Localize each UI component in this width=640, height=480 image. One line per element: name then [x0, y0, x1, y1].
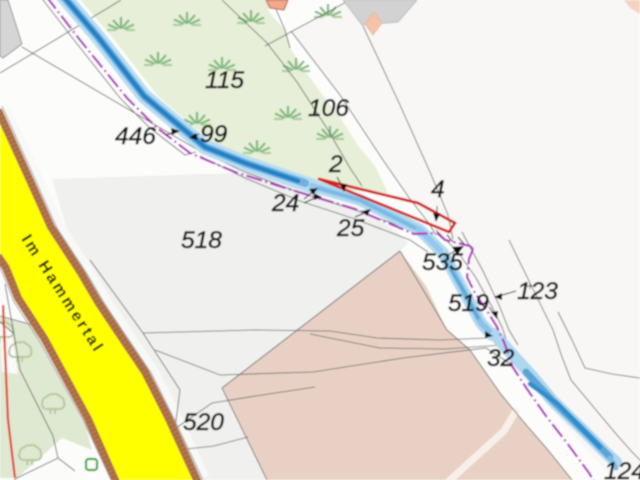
svg-text:99: 99 [200, 121, 228, 148]
svg-text:520: 520 [183, 409, 224, 436]
svg-text:124: 124 [604, 458, 640, 480]
svg-text:106: 106 [308, 95, 349, 122]
svg-text:25: 25 [336, 215, 365, 242]
svg-text:123: 123 [517, 278, 558, 305]
svg-text:32: 32 [487, 345, 515, 372]
svg-text:519: 519 [448, 290, 489, 317]
svg-text:535: 535 [422, 249, 463, 276]
svg-text:115: 115 [205, 67, 244, 94]
svg-text:2: 2 [328, 151, 343, 178]
svg-text:4: 4 [431, 176, 445, 203]
svg-text:446: 446 [115, 123, 156, 150]
svg-text:24: 24 [271, 190, 299, 217]
svg-text:518: 518 [181, 227, 222, 254]
